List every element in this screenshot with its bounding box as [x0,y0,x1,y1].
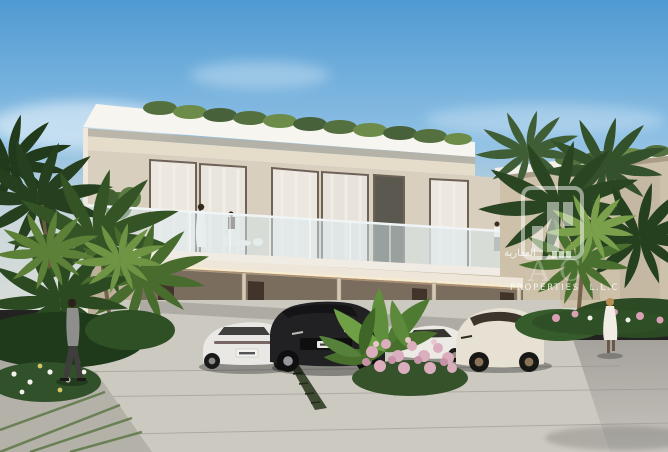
architectural-render: العقارية AC PROPERTIES L.L.C [0,0,668,452]
render-canvas [0,0,668,452]
right-flower-hedge [532,309,668,335]
